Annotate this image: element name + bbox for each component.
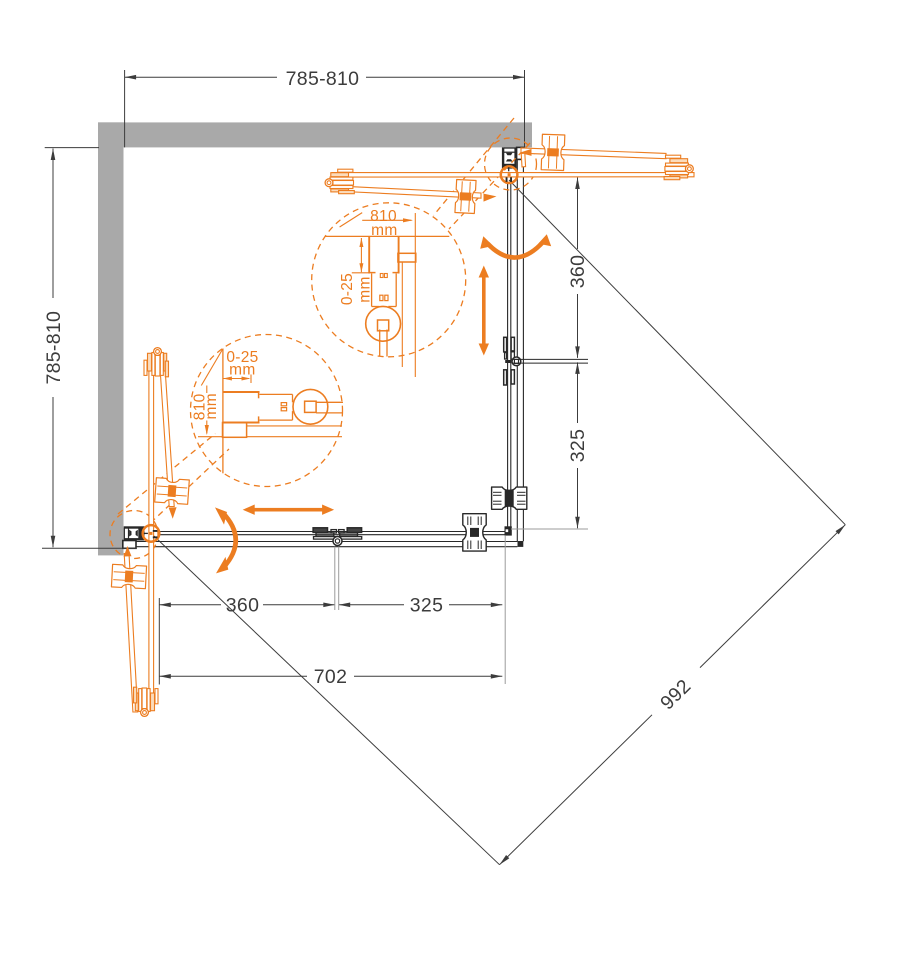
svg-text:785-810: 785-810 <box>286 68 360 90</box>
svg-text:702: 702 <box>314 666 347 688</box>
svg-text:785-810: 785-810 <box>43 311 65 385</box>
svg-text:mm: mm <box>203 393 220 419</box>
svg-text:mm: mm <box>371 222 397 239</box>
svg-text:325: 325 <box>567 429 589 462</box>
svg-text:0-25: 0-25 <box>339 273 356 305</box>
svg-text:mm: mm <box>229 362 255 379</box>
svg-text:360: 360 <box>567 255 589 288</box>
svg-text:mm: mm <box>356 276 373 302</box>
svg-text:360: 360 <box>226 594 259 616</box>
svg-text:325: 325 <box>410 594 443 616</box>
